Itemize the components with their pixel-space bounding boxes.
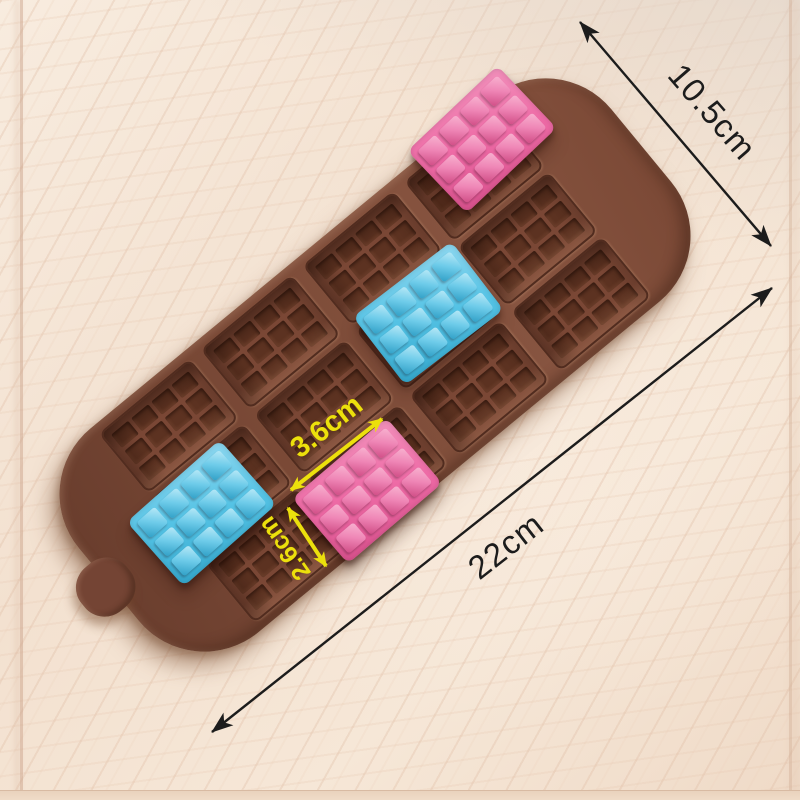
wood-plank-seam-right <box>789 0 792 800</box>
product-photo: 10.5cm 22cm 3.6cm 2.6cm <box>0 0 800 800</box>
wood-board-edge <box>0 790 800 800</box>
wood-plank-seam-left <box>20 0 23 800</box>
